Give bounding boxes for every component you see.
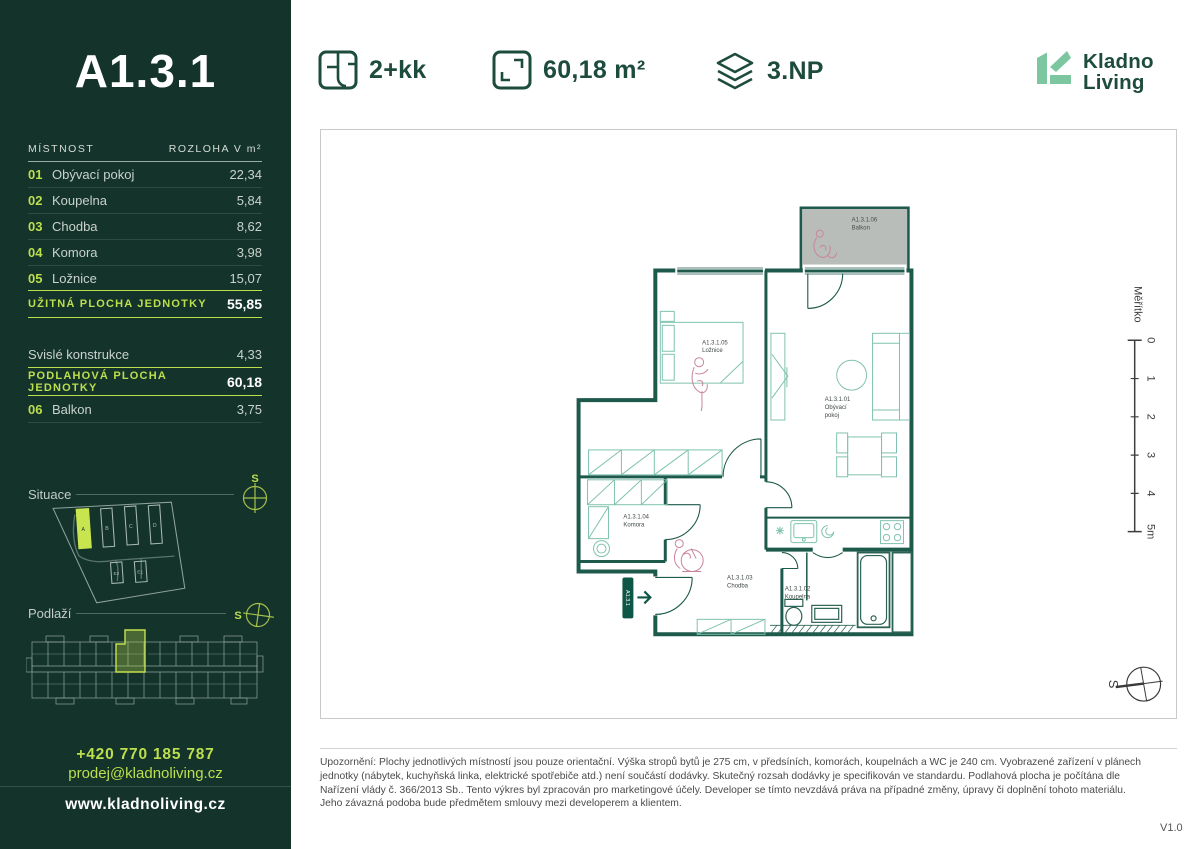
balcony-row: 06 Balkon 3,75 (28, 396, 262, 423)
floorplan-drawing: A1.3.1.06 Balkon A1.3.1.05 Ložnice A1.3.… (321, 130, 1176, 718)
floor-total-label: PODLAHOVÁ PLOCHA JEDNOTKY (28, 370, 227, 394)
floorplan-icon (318, 50, 358, 90)
floorplan-frame: A1.3.1.06 Balkon A1.3.1.05 Ložnice A1.3.… (320, 129, 1177, 719)
room-table-header: MÍSTNOST ROZLOHA V m² (28, 131, 262, 162)
sidebar-divider (0, 786, 291, 787)
layers-icon (714, 50, 756, 92)
site-building-label: C (129, 524, 133, 530)
scale-tick: 0 (1145, 337, 1157, 343)
scale-label: Měřítko (1132, 286, 1144, 323)
komora-name: Komora (623, 523, 645, 529)
table-row: 02 Koupelna 5,84 (28, 188, 262, 214)
balcony-code: A1.3.1.06 (852, 218, 878, 224)
row-num: 03 (28, 219, 52, 234)
disclaimer-text: Upozornění: Plochy jednotlivých místnost… (320, 756, 1180, 811)
usable-value: 55,85 (227, 296, 262, 312)
situace-rule (76, 494, 234, 495)
situace-compass-icon: S (238, 470, 272, 514)
contact-phone: +420 770 185 787 (0, 746, 291, 764)
floorplan-brochure-page: { "header": { "layout": "2+kk", "area": … (0, 0, 1200, 849)
podlazi-label: Podlaží (28, 606, 71, 621)
disclaimer-line: Upozornění: Plochy jednotlivých místnost… (320, 756, 1180, 770)
row-area: 8,62 (237, 219, 262, 234)
row-name: Balkon (52, 402, 92, 417)
podlazi-compass-icon: S (230, 600, 276, 630)
layout-value: 2+kk (369, 56, 427, 85)
scale-bar: Měřítko 0 1 2 3 4 5m (1128, 286, 1157, 539)
row-area: 15,07 (229, 271, 262, 286)
plan-compass-icon: S (1106, 667, 1163, 701)
table-row: 01 Obývací pokoj 22,34 (28, 162, 262, 188)
brand-name: Kladno Living (1083, 51, 1154, 93)
koupelna-name: Koupelna (785, 594, 811, 600)
row-num: 01 (28, 167, 52, 182)
area-icon (492, 50, 532, 90)
komora-code: A1.3.1.04 (623, 515, 649, 521)
floor-value: 3.NP (767, 57, 824, 86)
brand-line1: Kladno (1083, 51, 1154, 72)
situace-site-map: A B C D E2 E1 (50, 500, 190, 606)
header-area-group: 60,18 m² (492, 50, 645, 90)
unit-title: A1.3.1 (0, 44, 291, 98)
row-name: Ložnice (52, 271, 97, 286)
entry-unit-tag: A1.3.1 (624, 590, 630, 606)
area-value: 60,18 m² (543, 56, 645, 85)
row-name: Chodba (52, 219, 98, 234)
chodba-code: A1.3.1.03 (727, 575, 753, 581)
podlazi-compass-label: S (234, 610, 241, 622)
scale-tick: 3 (1145, 452, 1157, 458)
living-name2: pokoj (825, 413, 839, 419)
table-row: 03 Chodba 8,62 (28, 214, 262, 240)
koupelna-code: A1.3.1.02 (785, 586, 811, 592)
brand-line2: Living (1083, 72, 1154, 93)
row-area: 3,75 (237, 402, 262, 417)
scale-tick: 5m (1145, 524, 1157, 539)
usable-area-row: UŽITNÁ PLOCHA JEDNOTKY 55,85 (28, 291, 262, 318)
floor-total-value: 60,18 (227, 374, 262, 390)
bedroom-name: Ložnice (702, 348, 723, 354)
vertical-label: Svislé konstrukce (28, 347, 129, 362)
podlazi-building-plan (26, 628, 266, 708)
disclaimer-line: Nařízení vlády č. 366/2013 Sb.. Tento vý… (320, 784, 1180, 798)
row-area: 3,98 (237, 245, 262, 260)
vertical-value: 4,33 (237, 347, 262, 362)
entry-marker: A1.3.1 (622, 577, 650, 618)
scale-tick: 1 (1145, 376, 1157, 382)
row-num: 04 (28, 245, 52, 260)
header-floor-group: 3.NP (714, 50, 824, 92)
floor-area-row: PODLAHOVÁ PLOCHA JEDNOTKY 60,18 (28, 368, 262, 396)
entry-arrow-icon (637, 591, 650, 603)
row-name: Komora (52, 245, 98, 260)
usable-label: UŽITNÁ PLOCHA JEDNOTKY (28, 298, 207, 310)
disclaimer-line: Jeho závazná podoba bude předmětem smlou… (320, 797, 1180, 811)
room-table: MÍSTNOST ROZLOHA V m² 01 Obývací pokoj 2… (28, 131, 262, 423)
living-name1: Obývací (825, 405, 847, 411)
bedroom-code: A1.3.1.05 (702, 340, 728, 346)
row-area: 22,34 (229, 167, 262, 182)
table-row: 05 Ložnice 15,07 (28, 266, 262, 292)
site-building-label: E1 (137, 570, 143, 576)
row-num: 05 (28, 271, 52, 286)
balcony-name: Balkon (852, 226, 870, 232)
row-name: Obývací pokoj (52, 167, 134, 182)
table-row: 04 Komora 3,98 (28, 240, 262, 266)
contact-email: prodej@kladnoliving.cz (0, 765, 291, 782)
row-area: 5,84 (237, 193, 262, 208)
kladno-living-logo-mark (1037, 51, 1071, 84)
footer-divider (320, 748, 1177, 749)
podlazi-rule (76, 613, 226, 614)
disclaimer-line: jednotky (nábytek, kuchyňská linka, elek… (320, 770, 1180, 784)
sidebar: A1.3.1 MÍSTNOST ROZLOHA V m² 01 Obývací … (0, 0, 291, 849)
chodba-name: Chodba (727, 583, 749, 589)
site-building-label: B (105, 526, 109, 532)
row-num: 02 (28, 193, 52, 208)
scale-tick: 2 (1145, 414, 1157, 420)
row-num: 06 (28, 402, 52, 417)
site-building-label: A (81, 527, 85, 533)
scale-tick: 4 (1145, 490, 1157, 496)
contact-web: www.kladnoliving.cz (0, 796, 291, 814)
plan-compass-label: S (1106, 680, 1121, 689)
site-building-label: D (153, 523, 157, 529)
row-name: Koupelna (52, 193, 107, 208)
site-building-label: E2 (113, 571, 119, 577)
podlazi-unit-highlight (116, 630, 145, 672)
header-layout-group: 2+kk (318, 50, 427, 90)
living-code: A1.3.1.01 (825, 397, 851, 403)
col-area: ROZLOHA V m² (169, 143, 262, 155)
version-tag: V1.0 (1160, 822, 1183, 834)
col-room: MÍSTNOST (28, 143, 94, 155)
vertical-structures-row: Svislé konstrukce 4,33 (28, 342, 262, 368)
brand-logo: Kladno Living (1037, 51, 1154, 93)
